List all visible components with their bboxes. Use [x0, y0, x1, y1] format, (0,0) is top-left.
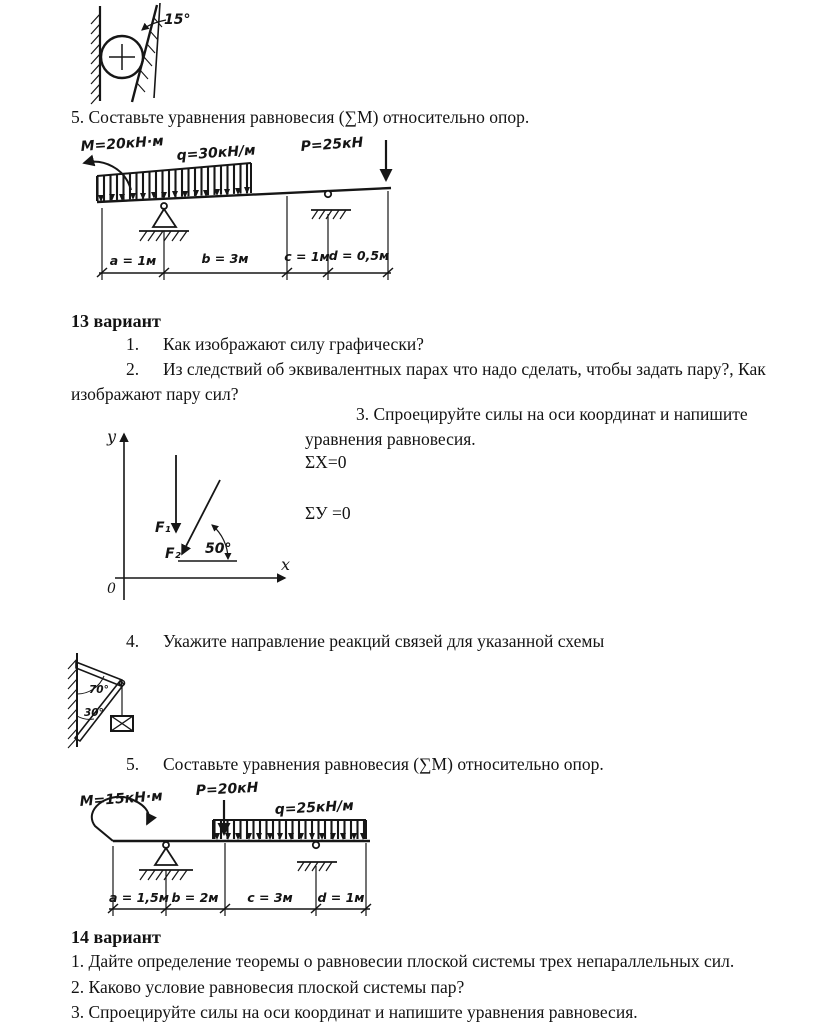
v13-q3-text-line1: 3. Спроецируйте силы на оси координат и … [356, 404, 748, 426]
v13-q3-text-line2: уравнения равновесия. [305, 429, 476, 451]
angle-label: 15° [164, 12, 190, 28]
wall-inclined [132, 3, 162, 102]
wall-left [91, 6, 100, 104]
dim-d-label: d = 1м [317, 890, 364, 905]
force-f1-label: F₁ [155, 520, 171, 536]
coordinate-axes-figure: y x 0 F₁ F₂ 50° [85, 408, 315, 603]
v13-q2-number: 2. [126, 359, 139, 381]
angle-30-label: 30° [84, 707, 104, 719]
cylinder [101, 36, 143, 78]
v14-q1-text: 1. Дайте определение теоремы о равновеси… [71, 951, 734, 973]
dim-a-label: a = 1м [110, 253, 157, 268]
v13-q5-number: 5. [126, 754, 139, 776]
top-bar [76, 662, 122, 686]
v13-q2-text-line1: Из следствий об эквивалентных парах что … [163, 359, 766, 381]
dim-a-label: a = 1,5м [109, 890, 169, 905]
beam-diagram-1: М=20кН·м q=30кН/м Р=25кН a = 1м b = 3м c… [75, 130, 407, 290]
dim-c-label: c = 3м [247, 890, 293, 905]
v13-q4-text: Укажите направление реакций связей для у… [163, 631, 604, 653]
y-axis-label: y [106, 427, 117, 446]
beam-diagram-2: М=15кН·м Р=20кН q=25кН/м a = 1,5м b = 2м… [75, 780, 397, 922]
distributed-load-label: q=30кН/м [176, 143, 256, 164]
distributed-load-label: q=25кН/м [274, 798, 354, 818]
force-label: Р=25кН [300, 135, 364, 155]
angle-50-label: 50° [205, 541, 231, 557]
x-axis-label: x [281, 555, 290, 574]
v13-q5-text: Составьте уравнения равновесия (∑М) отно… [163, 754, 604, 776]
variant-13-title: 13 вариант [71, 310, 161, 333]
force-f2-label: F₂ [165, 546, 182, 562]
dim-b-label: b = 2м [171, 890, 218, 905]
v14-q2-text: 2. Каково условие равновесия плоской сис… [71, 977, 464, 999]
v13-q1-number: 1. [126, 334, 139, 356]
question-5-top: 5. Составьте уравнения равновесия (∑М) о… [71, 107, 529, 129]
roller-support [311, 191, 351, 219]
distributed-load-band [213, 820, 366, 840]
v14-q3-text: 3. Спроецируйте силы на оси координат и … [71, 1002, 638, 1024]
variant-14-title: 14 вариант [71, 926, 161, 949]
angle-leader-arrow [142, 20, 166, 30]
dim-d-label: d = 0,5м [329, 248, 390, 263]
v13-q1-text: Как изображают силу графически? [163, 334, 424, 356]
roller-support [297, 842, 337, 871]
v13-q2-text-line2: изображают пару сил? [71, 384, 238, 406]
hanging-weight [111, 686, 133, 731]
wall-bracket-figure: 70° 30° [63, 650, 148, 750]
cylinder-wedge-figure: 15° [78, 2, 198, 108]
origin-label: 0 [107, 581, 116, 597]
moment-label: М=20кН·м [80, 133, 164, 155]
dim-c-label: c = 1м [284, 249, 330, 264]
moment-label: М=15кН·м [79, 788, 163, 810]
angle-70-label: 70° [89, 684, 109, 696]
force-label: Р=20кН [195, 780, 259, 799]
dim-b-label: b = 3м [201, 251, 248, 266]
dimension-lines [108, 843, 371, 916]
